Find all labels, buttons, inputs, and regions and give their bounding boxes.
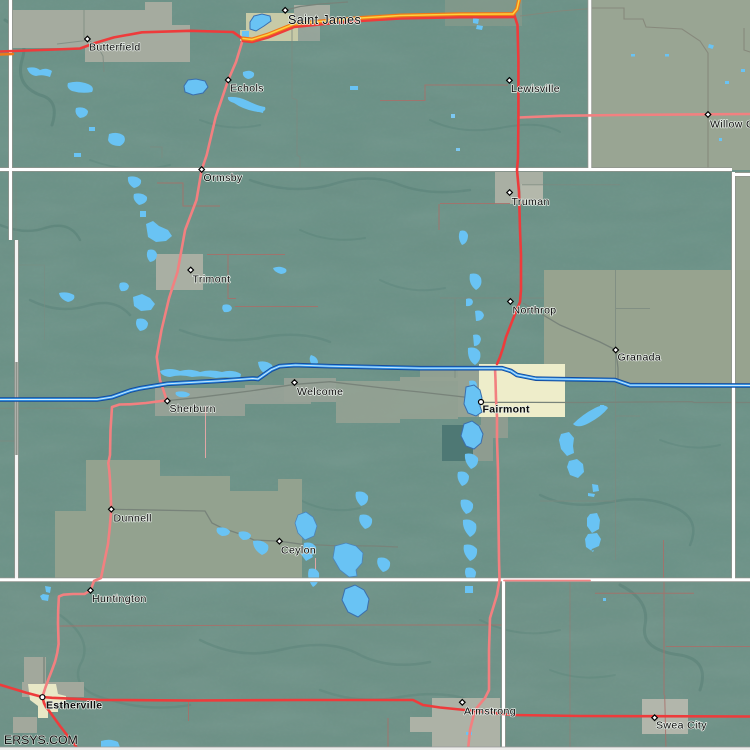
svg-text:Saint James: Saint James [288, 13, 361, 27]
svg-text:Lewisville: Lewisville [511, 83, 560, 95]
svg-text:Echols: Echols [230, 83, 264, 95]
svg-text:Butterfield: Butterfield [89, 42, 141, 54]
svg-text:Dunnell: Dunnell [114, 513, 152, 525]
svg-text:Granada: Granada [618, 352, 662, 364]
svg-text:Welcome: Welcome [297, 386, 343, 398]
svg-text:Sherburn: Sherburn [170, 403, 216, 415]
svg-text:Ceylon: Ceylon [281, 545, 316, 557]
svg-text:Estherville: Estherville [46, 700, 102, 712]
svg-text:Huntington: Huntington [92, 593, 147, 605]
svg-text:ERSYS.COM: ERSYS.COM [4, 733, 78, 747]
svg-text:Swea City: Swea City [656, 720, 707, 732]
svg-text:Fairmont: Fairmont [483, 404, 531, 416]
svg-text:Northrop: Northrop [513, 305, 557, 317]
svg-text:Armstrong: Armstrong [464, 706, 516, 718]
svg-text:Ormsby: Ormsby [204, 172, 243, 184]
svg-text:Trimont: Trimont [193, 274, 231, 286]
svg-text:Willow C: Willow C [710, 119, 750, 131]
svg-text:Truman: Truman [512, 196, 550, 208]
